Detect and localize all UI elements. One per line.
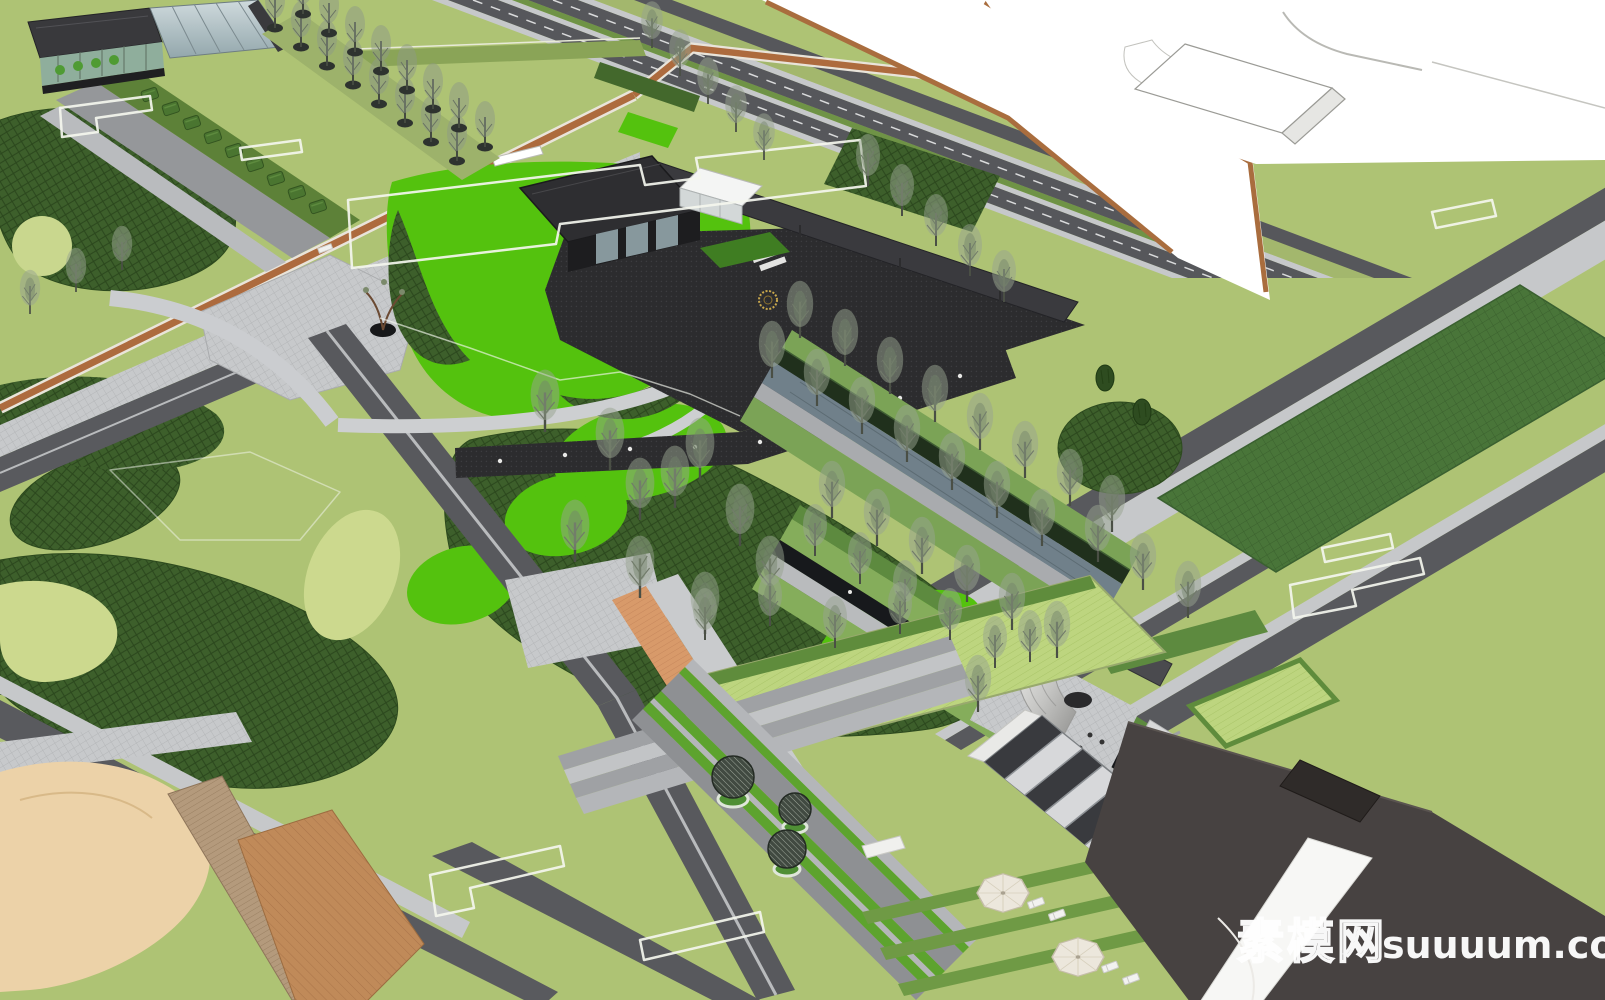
parasol-icon bbox=[1052, 938, 1104, 976]
topiary-tree-1 bbox=[712, 756, 754, 798]
topiary-tree-2 bbox=[779, 793, 811, 825]
landscape-render: 素模网 suuuum.com bbox=[0, 0, 1605, 1000]
watermark: 素模网 suuuum.com bbox=[1237, 915, 1605, 970]
topiary-tree-3 bbox=[768, 830, 806, 868]
watermark-site-name: 素模网 bbox=[1237, 915, 1387, 970]
watermark-domain: suuuum.com bbox=[1382, 923, 1605, 967]
site-plan-canvas: 素模网 suuuum.com bbox=[0, 0, 1605, 1000]
parasol-icon bbox=[977, 874, 1029, 912]
